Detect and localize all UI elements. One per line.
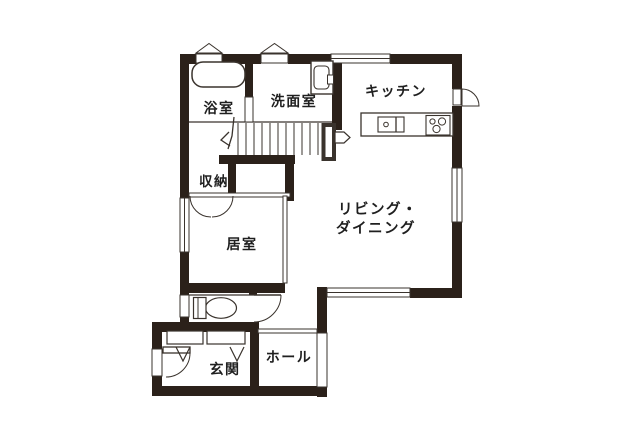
label-living-2: ダイニング: [336, 219, 416, 237]
wall-entrance-left-top: [152, 322, 162, 349]
wall-stairs-bottom: [219, 155, 295, 164]
entrance-door-swing: [166, 353, 190, 377]
label-storage: 収納: [199, 173, 229, 189]
gable-vent-icon: [261, 44, 288, 54]
toilet-door-swing: [254, 295, 281, 322]
kitchen-sink-icon: [378, 117, 404, 132]
label-bedroom: 居室: [227, 236, 258, 252]
bedroom-ld-partition: [283, 196, 287, 283]
cabinet-v-mark: [230, 347, 244, 361]
wall-top-4: [390, 54, 452, 64]
window-hall-right: [317, 333, 327, 387]
washing-machine-panel: [328, 75, 334, 84]
label-kitchen: キッチン: [365, 83, 427, 99]
wall-hall-right-top: [317, 287, 327, 333]
hall-ld-threshold: [258, 329, 317, 333]
floor-plan-svg: 浴室 洗面室 キッチン 収納 居室 リビング・ ダイニング 玄関 ホール: [0, 0, 640, 445]
wall-bedroom-bottom: [180, 283, 285, 293]
window-washroom-top: [261, 54, 288, 63]
duct-column: [324, 125, 335, 159]
toilet-bowl-icon: [206, 298, 237, 319]
label-washroom: 洗面室: [271, 93, 318, 109]
bath-sliding-door: [245, 97, 253, 122]
closet-door-right-swing: [212, 196, 233, 217]
floor-plan: 浴室 洗面室 キッチン 収納 居室 リビング・ ダイニング 玄関 ホール: [0, 0, 640, 445]
wall-right-3: [452, 222, 462, 298]
closet-track-line: [189, 193, 290, 197]
wall-bottom: [152, 386, 327, 396]
washing-machine-drum: [314, 66, 329, 89]
label-bathroom: 浴室: [204, 100, 235, 116]
kitchen-back-door-leaf: [453, 89, 461, 105]
wall-entrance-hall-divider: [250, 332, 259, 396]
window-toilet-left: [180, 295, 189, 317]
label-hall: ホール: [266, 349, 313, 365]
label-living-1: リビング・: [338, 200, 418, 218]
wall-ld-bottom: [410, 288, 454, 298]
wall-left-1: [180, 54, 189, 198]
toilet-tank-icon: [194, 298, 207, 319]
stair-arrowhead: [221, 132, 230, 146]
passage-arrow-icon: [335, 132, 350, 143]
wall-toilet-jamb: [249, 288, 257, 295]
shoe-cabinet-icon: [207, 331, 245, 344]
label-entrance: 玄関: [210, 361, 241, 377]
kitchen-back-door-swing: [462, 89, 479, 106]
wall-storage-divider: [228, 164, 236, 196]
bathtub-icon: [192, 62, 245, 87]
wall-right-1: [452, 54, 462, 89]
entrance-door-gap: [152, 349, 162, 376]
wall-entrance-left-bottom: [152, 376, 162, 396]
closet-door-left-swing: [190, 196, 211, 217]
staircase: [221, 117, 318, 155]
wall-bath-washroom: [245, 54, 253, 97]
shoe-cabinet-icon: [167, 331, 203, 344]
gable-vent-icon: [196, 44, 222, 54]
